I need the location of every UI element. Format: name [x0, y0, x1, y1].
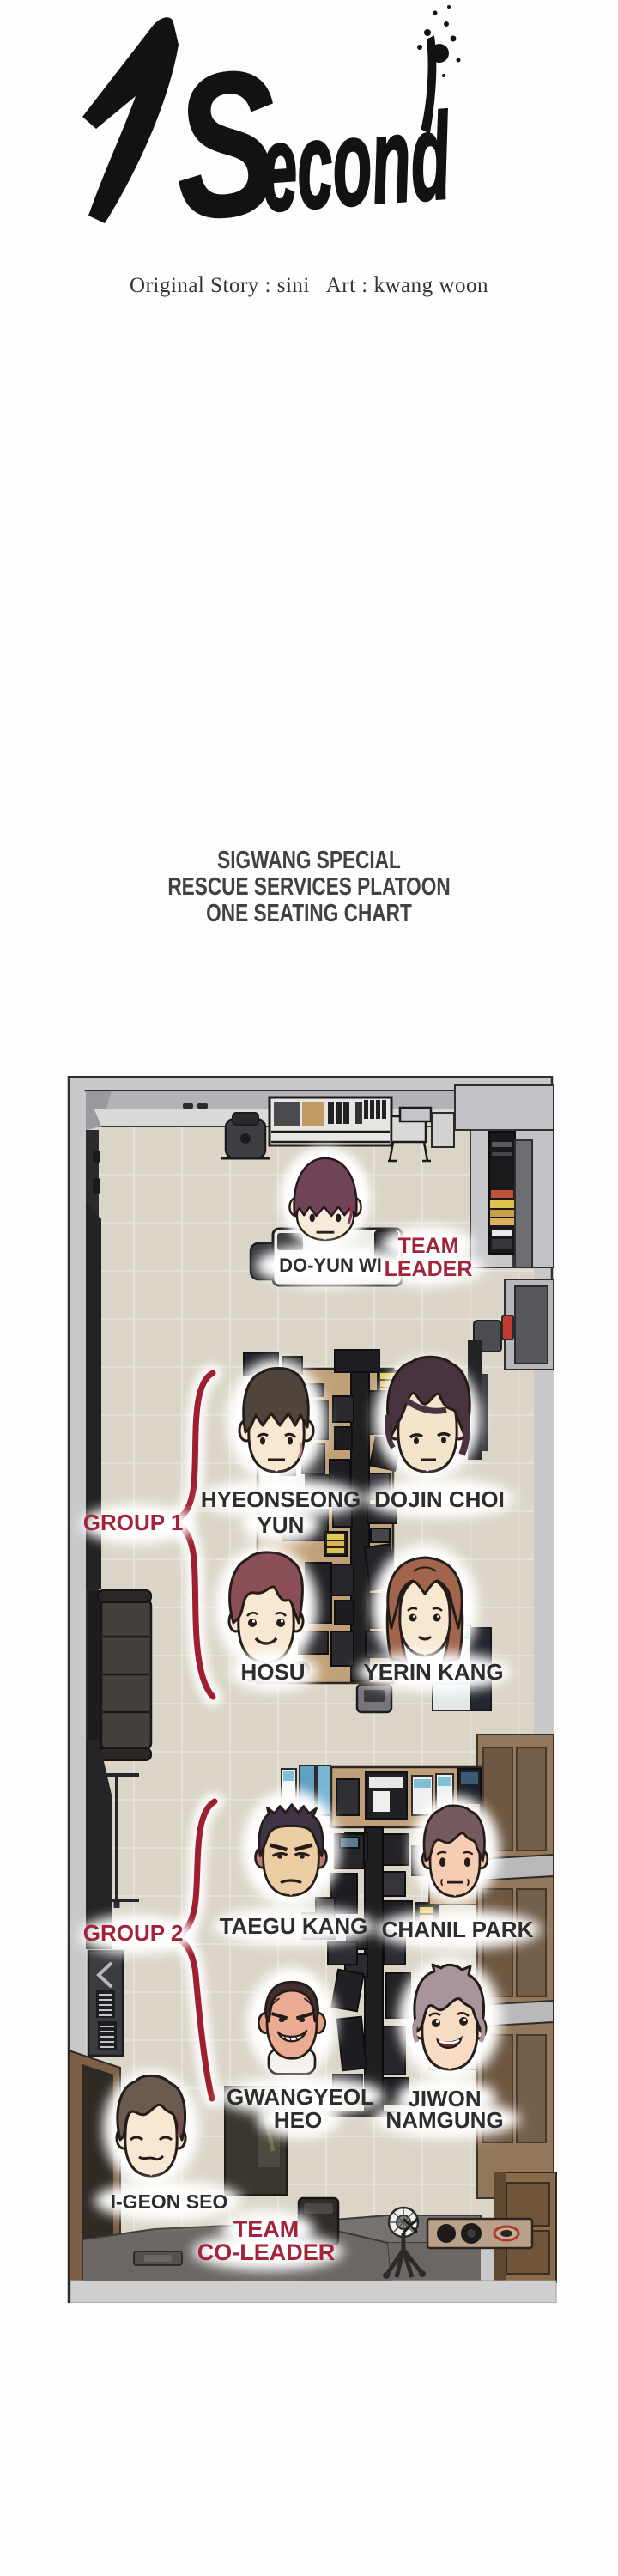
- svg-text:TEAM: TEAM: [398, 1234, 459, 1258]
- svg-text:LEADER: LEADER: [385, 1257, 473, 1281]
- svg-text:CHANIL PARK: CHANIL PARK: [382, 1917, 534, 1942]
- svg-text:DOJIN CHOI: DOJIN CHOI: [374, 1486, 505, 1512]
- svg-text:GROUP 2: GROUP 2: [83, 1920, 184, 1946]
- svg-text:DO-YUN WI: DO-YUN WI: [279, 1255, 382, 1276]
- svg-text:YUN: YUN: [257, 1512, 305, 1538]
- svg-text:HOSU: HOSU: [240, 1659, 305, 1685]
- svg-text:HEO: HEO: [274, 2107, 322, 2133]
- svg-text:GROUP 1: GROUP 1: [83, 1510, 184, 1535]
- svg-text:YERIN KANG: YERIN KANG: [363, 1659, 503, 1685]
- svg-text:TEAM: TEAM: [233, 2216, 300, 2242]
- svg-text:CO-LEADER: CO-LEADER: [197, 2239, 336, 2265]
- svg-text:GWANGYEOL: GWANGYEOL: [227, 2084, 374, 2110]
- svg-text:I-GEON SEO: I-GEON SEO: [111, 2190, 228, 2213]
- svg-text:NAMGUNG: NAMGUNG: [385, 2107, 503, 2133]
- svg-text:TAEGU KANG: TAEGU KANG: [220, 1913, 368, 1939]
- svg-text:HYEONSEONG: HYEONSEONG: [201, 1486, 360, 1512]
